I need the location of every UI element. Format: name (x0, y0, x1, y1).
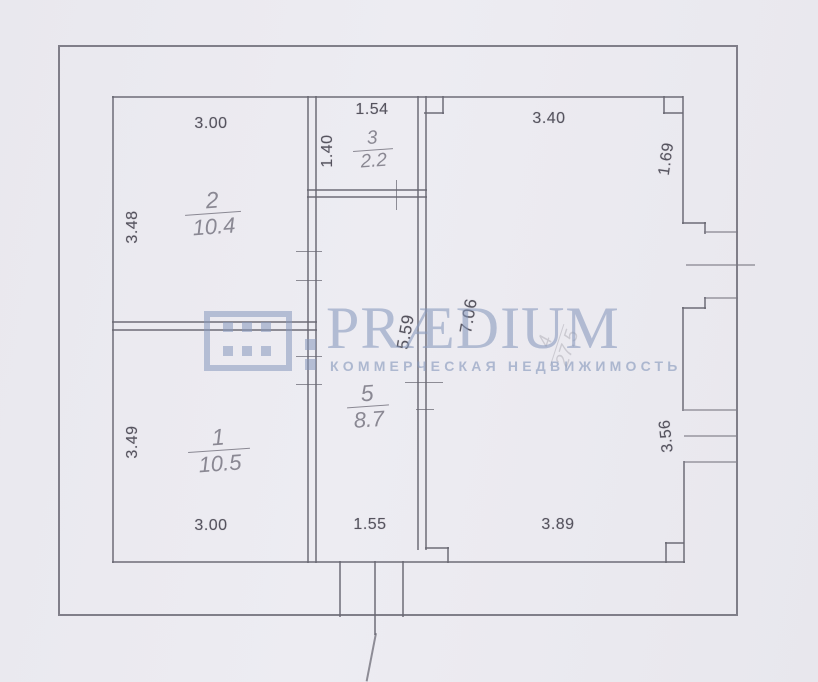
room-label-2: 2 10.4 (183, 186, 242, 240)
floor-plan-scan: 3.00 1.54 3.40 3.48 1.40 1.69 3.49 3.56 … (0, 0, 818, 682)
window1-jamb-bottom-h (682, 307, 706, 309)
door-tick-room1-a (296, 356, 322, 357)
window1-line-top (704, 231, 738, 233)
wall-room3-bottom-b (307, 196, 427, 198)
wall-inner-top (112, 96, 683, 98)
watermark-logo-dot (261, 346, 271, 356)
watermark-logo-dot (223, 346, 233, 356)
room2-number: 2 (205, 187, 219, 212)
dim-left-room2: 3.48 (124, 210, 142, 243)
pilaster-corridor-v (447, 547, 449, 563)
dim-right-lower: 3.56 (656, 419, 677, 454)
dim-room3-depth: 1.40 (319, 134, 337, 167)
door-tick-room3 (396, 180, 397, 210)
room1-number: 1 (211, 424, 225, 449)
window1-line-bottom (704, 297, 738, 299)
dim-bottom-room1: 3.00 (194, 517, 227, 535)
room-label-1: 1 10.5 (186, 423, 251, 477)
room-label-3: 3 2.2 (352, 127, 395, 173)
door-tick-room2-a (296, 251, 322, 252)
dim-top-room2: 3.00 (194, 115, 227, 133)
entrance-jamb-mid (374, 561, 376, 635)
entrance-jamb-left (339, 561, 341, 617)
room2-area: 10.4 (192, 214, 236, 240)
wall-inner-right-upper (682, 96, 684, 224)
watermark-logo-icon (204, 311, 292, 371)
entrance-door-leaf (366, 633, 377, 681)
pilaster-bottom-right-v (665, 542, 667, 563)
room1-area: 10.5 (198, 451, 242, 477)
dim-top-room4: 3.40 (532, 110, 565, 128)
watermark-logo-dot (242, 346, 252, 356)
window2-line-mid (684, 435, 736, 437)
dim-bottom-room4: 3.89 (541, 516, 574, 534)
pilaster-top-mid-v (442, 96, 444, 114)
pilaster-corridor-h (425, 547, 449, 549)
door-tick-room1-b (296, 384, 322, 385)
door-tick-room4-b (416, 409, 434, 410)
watermark-logo-dot (261, 322, 271, 332)
watermark-brand-text: PRÆDIUM (326, 294, 620, 363)
window2-line-bottom (684, 461, 736, 463)
door-tick-room4-a (405, 382, 443, 383)
room3-number: 3 (366, 128, 378, 149)
watermark-colon-dot (305, 359, 316, 370)
room5-number: 5 (360, 380, 374, 405)
entrance-jamb-right (402, 561, 404, 617)
pilaster-bottom-right-h (665, 542, 684, 544)
room3-area: 2.2 (360, 151, 388, 173)
door-tick-room2-b (296, 280, 322, 281)
watermark-colon-dot (305, 339, 316, 350)
room5-area: 8.7 (353, 407, 385, 432)
window2-line-top (684, 409, 736, 411)
dim-top-room3: 1.54 (355, 101, 388, 119)
dim-bottom-corridor: 1.55 (353, 516, 386, 534)
pilaster-top-right-h (663, 112, 683, 114)
window1-sill (686, 264, 755, 266)
wall-corridor-left-a (307, 96, 309, 563)
wall-room3-bottom-a (307, 189, 427, 191)
dim-left-room1: 3.49 (124, 425, 142, 458)
window1-jamb-top-h (682, 222, 706, 224)
watermark-logo-dot (223, 322, 233, 332)
pilaster-top-mid-h (424, 112, 444, 114)
pilaster-top-right-v (663, 96, 665, 114)
wall-corridor-left-b (315, 96, 317, 563)
wall-inner-right-mid (682, 307, 684, 411)
wall-inner-right-lower (683, 461, 685, 563)
wall-inner-bottom (112, 561, 685, 563)
room-label-5: 5 8.7 (345, 379, 390, 432)
watermark-logo-dot (242, 322, 252, 332)
watermark-tagline-text: КОММЕРЧЕСКАЯ НЕДВИЖИМОСТЬ (330, 358, 682, 374)
